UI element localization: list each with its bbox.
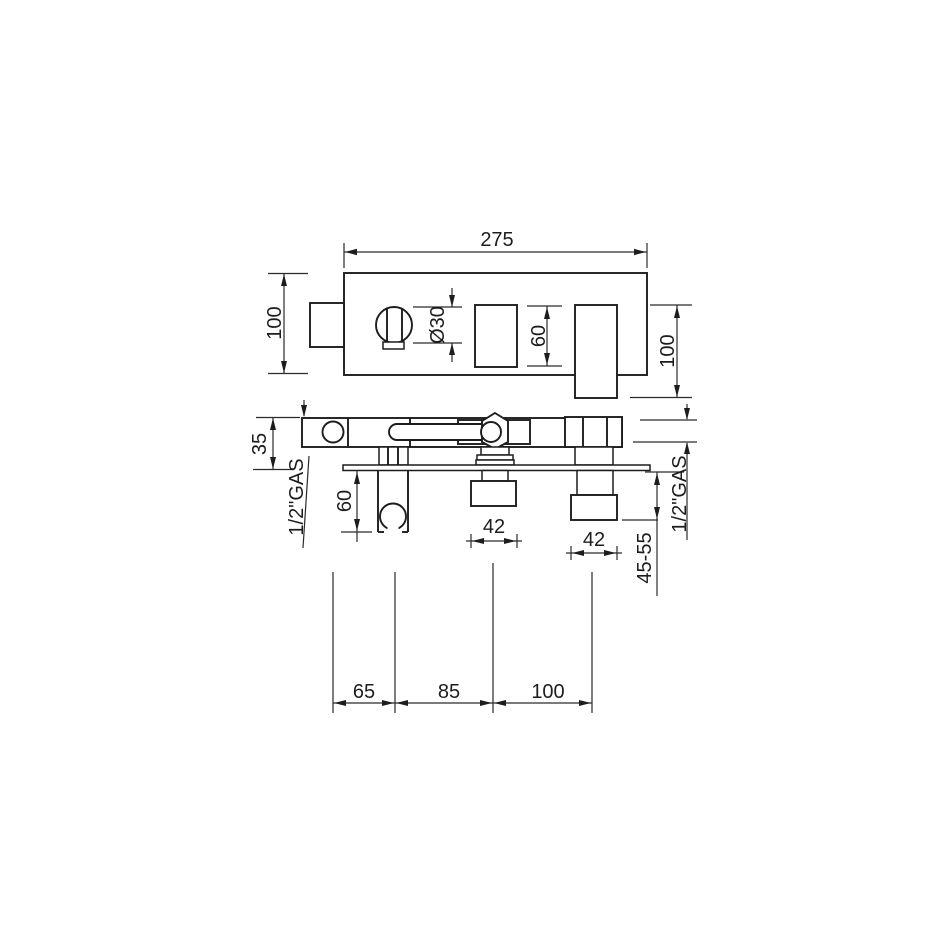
arrowhead xyxy=(396,700,408,706)
technical-drawing-canvas: 275 100 Ø30 60 100 xyxy=(0,0,950,950)
arrowhead xyxy=(382,700,394,706)
dim-label-union-height: 100 xyxy=(657,334,679,367)
arrowhead xyxy=(354,472,360,484)
wall-union-top-view xyxy=(575,305,617,398)
dim-label-spacing-middle: 85 xyxy=(438,681,460,703)
dim-holder-60: 60 xyxy=(334,471,372,542)
arrowhead xyxy=(684,408,690,420)
dim-label-thread-right: 1/2"GAS xyxy=(669,455,691,532)
dim-label-holder-depth: 60 xyxy=(334,490,356,512)
knob-tab xyxy=(383,342,404,349)
arrowhead xyxy=(504,538,516,544)
arrowhead xyxy=(674,385,680,397)
outlet-stem-lower xyxy=(577,471,613,496)
dim-label-thread-left: 1/2"GAS xyxy=(286,458,308,535)
arrowhead xyxy=(270,418,276,430)
arrowhead xyxy=(270,457,276,469)
drawing-page: 275 100 Ø30 60 100 xyxy=(0,0,950,950)
arrowhead xyxy=(472,538,484,544)
dim-label-spacing-right: 100 xyxy=(531,681,564,703)
wall-plate xyxy=(343,465,650,471)
arrowhead xyxy=(354,519,360,531)
holder-bracket xyxy=(379,447,408,465)
outlet-block xyxy=(571,495,617,520)
arrowhead xyxy=(654,473,660,485)
diverter-box-top-view xyxy=(475,305,517,367)
outlet-stem-upper xyxy=(575,447,613,465)
arrowhead xyxy=(334,700,346,706)
dim-spout-42: 42 xyxy=(466,516,522,548)
dim-outlet-42: 42 xyxy=(566,529,622,560)
dim-label-body-height: 35 xyxy=(249,433,271,455)
arrowhead xyxy=(281,361,287,373)
diverter-button xyxy=(323,422,344,443)
arrowhead xyxy=(494,700,506,706)
inlet-fitting-block xyxy=(565,417,622,447)
dim-height-100-left: 100 xyxy=(264,274,308,374)
arrowhead xyxy=(345,249,357,255)
arrowhead xyxy=(480,700,492,706)
lever-handle xyxy=(389,424,489,440)
spout-neck-lower xyxy=(482,471,508,482)
dim-label-spacing-left: 65 xyxy=(353,681,375,703)
front-view xyxy=(302,413,650,532)
dim-width-275: 275 xyxy=(344,229,647,268)
handshower-holder xyxy=(378,471,408,533)
arrowhead xyxy=(684,442,690,454)
arrowhead xyxy=(634,249,646,255)
arrowhead xyxy=(604,550,616,556)
dim-label-spout-width: 42 xyxy=(483,516,505,538)
dim-label-width: 275 xyxy=(480,229,513,251)
arrowhead xyxy=(301,405,307,417)
dim-label-outlet-width: 42 xyxy=(583,529,605,551)
dim-spacing-row: 65 85 100 xyxy=(333,563,592,713)
left-outlet-top-view xyxy=(310,303,344,347)
arrowhead xyxy=(674,306,680,318)
arrowhead xyxy=(281,274,287,286)
pivot-circle xyxy=(481,422,501,442)
top-view xyxy=(310,273,647,398)
arrowhead xyxy=(654,507,660,519)
dim-label-wall-range: 45-55 xyxy=(634,532,656,583)
dim-label-height-left: 100 xyxy=(264,306,286,339)
spout-neck-upper xyxy=(481,447,509,455)
knob-circle xyxy=(376,307,412,343)
tub-spout-block xyxy=(471,481,516,506)
dim-label-knob-diameter: Ø30 xyxy=(427,306,449,344)
dim-label-box-height: 60 xyxy=(528,325,550,347)
arrowhead xyxy=(579,700,591,706)
